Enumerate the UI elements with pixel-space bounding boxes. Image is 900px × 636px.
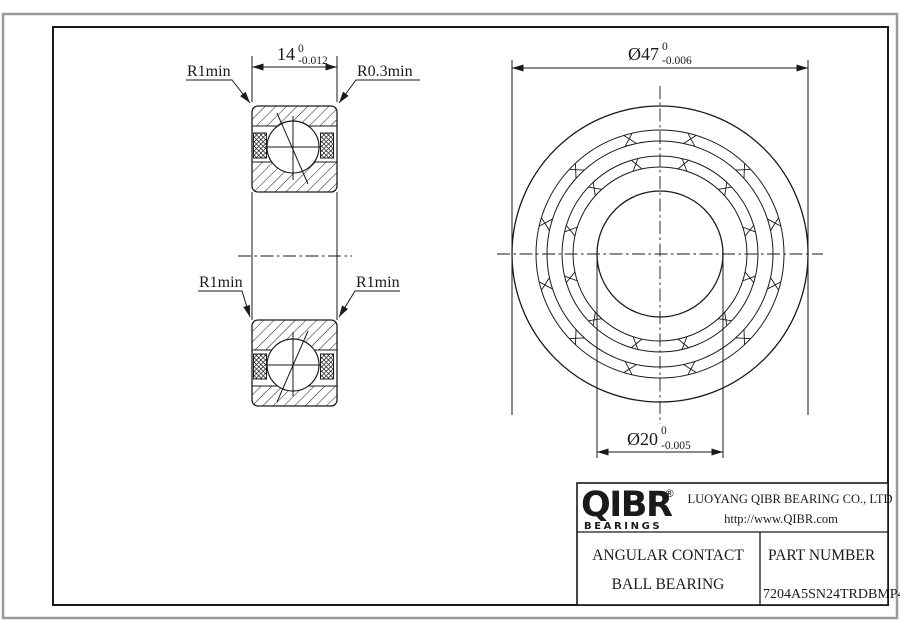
bore-dia-tol-lower: -0.005: [661, 440, 691, 452]
company-name: LUOYANG QIBR BEARING CO., LTD: [687, 492, 892, 506]
top-section: [252, 106, 337, 192]
part-number-label: PART NUMBER: [768, 547, 876, 564]
fillet-label-top-right: R0.3min: [357, 63, 413, 80]
cage-section-left: [254, 133, 267, 158]
qibr-logo: QIBR ® BEARINGS: [581, 485, 675, 532]
width-dim-tol-upper: 0: [298, 43, 304, 55]
bore-dia-value: Ø20: [627, 429, 658, 449]
drawing-sheet: 14 0 -0.012 R1min R0.3min R1min R1min: [0, 0, 900, 636]
bore-dia-tol-upper: 0: [661, 425, 667, 437]
logo-text: QIBR: [581, 485, 673, 525]
bottom-section: [252, 320, 337, 406]
part-number-value: 7204A5SN24TRDBMP4: [763, 587, 900, 602]
outer-dia-tol-lower: -0.006: [662, 55, 692, 67]
cage-section-right: [321, 133, 334, 158]
company-website: http://www.QIBR.com: [724, 512, 838, 526]
title-block: QIBR ® BEARINGS LUOYANG QIBR BEARING CO.…: [577, 483, 900, 605]
product-name-line2: BALL BEARING: [612, 576, 725, 593]
width-dimension: 14 0 -0.012: [252, 43, 337, 102]
front-view: Ø47 0 -0.006 Ø20 0 -0.005: [497, 41, 823, 458]
cage-section-left-bottom: [254, 354, 267, 379]
product-name-line1: ANGULAR CONTACT: [592, 547, 744, 564]
cage-section-right-bottom: [321, 354, 334, 379]
side-view: 14 0 -0.012 R1min R0.3min R1min R1min: [186, 43, 420, 406]
width-dim-value: 14: [277, 44, 295, 64]
registered-mark-icon: ®: [664, 487, 675, 500]
outer-dia-tol-upper: 0: [662, 41, 668, 53]
width-dim-tol-lower: -0.012: [298, 55, 328, 67]
logo-subtext: BEARINGS: [584, 521, 662, 532]
outer-dia-value: Ø47: [628, 44, 659, 64]
bearing-drawing: 14 0 -0.012 R1min R0.3min R1min R1min: [0, 0, 900, 636]
fillet-label-mid-left: R1min: [199, 274, 243, 291]
fillet-label-top-left: R1min: [187, 63, 231, 80]
fillet-label-mid-right: R1min: [356, 274, 400, 291]
